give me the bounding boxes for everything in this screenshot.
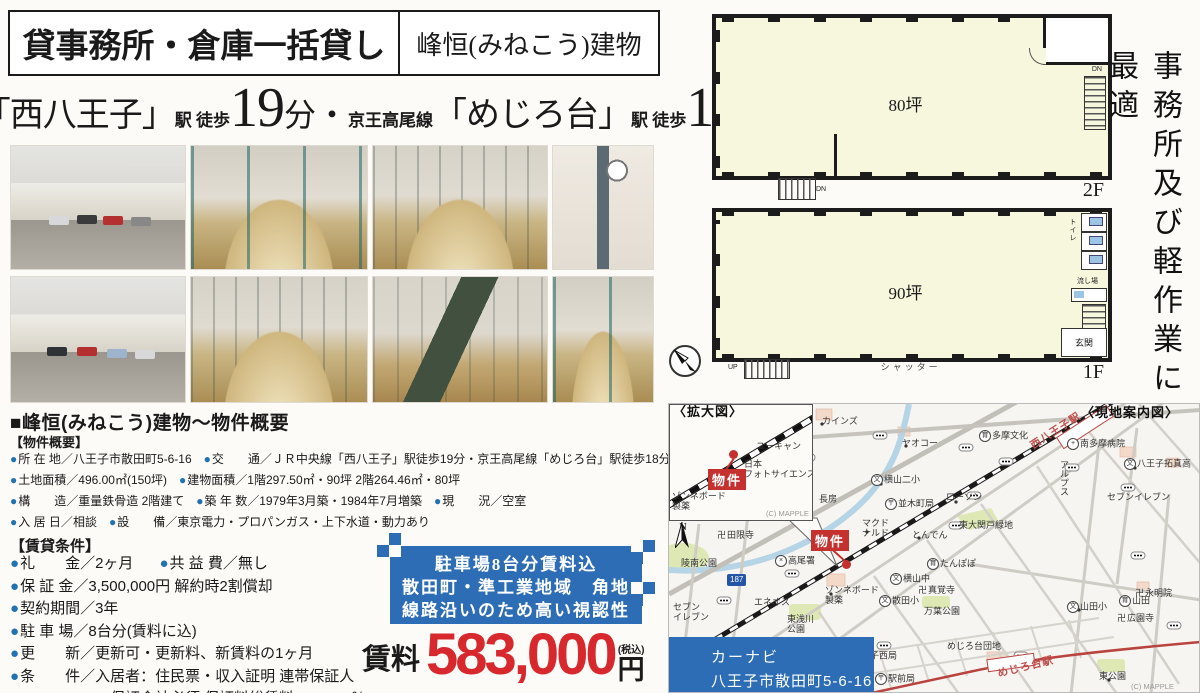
spec-item: ●交 通／ＪＲ中央線「西八王子」駅徒歩19分・京王高尾線「めじろ台」駅徒歩18分 <box>204 452 671 466</box>
spec-value: 2ヶ月 <box>95 555 133 572</box>
spec-separator: ／ <box>247 494 259 508</box>
wall-ticks <box>714 26 720 168</box>
stair-dn-label: DN <box>816 186 826 194</box>
header-box: 貸事務所・倉庫一括貸し 峰恒(みねこう)建物 <box>8 10 660 76</box>
spec-value: 496.00㎡(150坪) <box>78 473 167 487</box>
checker-decoration <box>631 540 655 564</box>
map-label: 〒並木町局 <box>885 498 934 510</box>
map-label: 陵南公園 <box>681 558 717 568</box>
property-rows: ●所 在 地／八王子市散田町5-6-16●交 通／ＪＲ中央線「西八王子」駅徒歩1… <box>10 449 658 533</box>
partition-wall <box>834 134 837 176</box>
floorplan-panel: 80坪 DN DN 2F 90坪 トイレ 流し場 UP 玄関 <box>668 0 1200 402</box>
bullet-icon: ● <box>179 473 186 487</box>
map-label: ×高尾署 <box>775 555 815 567</box>
wall-ticks <box>722 210 1102 216</box>
map-label: 長房 <box>819 494 837 504</box>
spec-item: ●構 造／重量鉄骨造 2階建て <box>10 494 184 508</box>
bullet-icon: ● <box>10 600 19 617</box>
rent-unit: 円 <box>618 656 645 684</box>
spec-item: ●礼 金／2ヶ月 <box>10 555 133 572</box>
spec-item: ●土地面積／496.00㎡(150坪) <box>10 473 167 487</box>
photo-interior-hall <box>552 276 654 403</box>
map-label: 卍永明院 <box>1135 588 1172 598</box>
map-symbol-icon: × <box>775 555 787 567</box>
door-arc <box>1029 48 1046 65</box>
checker-decoration <box>631 582 655 606</box>
spec-value: 八王子市散田町5-6-16 <box>73 452 192 466</box>
spec-item: ●入 居 日／相談 <box>10 515 97 529</box>
bullet-icon: ● <box>10 555 19 572</box>
spec-row: ●土地面積／496.00㎡(150坪)●建物面積／1階297.50㎡・90坪 2… <box>10 470 658 491</box>
property-marker-inset: 物件 <box>708 469 746 490</box>
carnav-address: 八王子市散田町5-6-16 <box>711 670 874 691</box>
map-symbol-icon: 育 <box>927 558 939 570</box>
map-symbol-icon: 文 <box>1067 601 1079 613</box>
spec-key: 構 造 <box>18 494 66 508</box>
overview-heading: ■峰恒(みねこう)建物〜物件概要 <box>10 408 289 435</box>
floorplan-1f: 90坪 トイレ 流し場 UP 玄関 UP シャッター 1F <box>712 208 1112 362</box>
map-compass-icon: N <box>675 522 691 533</box>
map-label: 万葉公園 <box>924 606 960 616</box>
map-credit: (C) MAPPLE <box>1131 682 1174 692</box>
spec-extra-line: 保証会社必須 保証料総賃料50〜100％ <box>110 688 390 693</box>
route-badge: 187 <box>727 574 746 586</box>
sink-label: 流し場 <box>1077 278 1098 286</box>
bullet-icon: ● <box>159 555 168 572</box>
map-label: マクドナルド <box>862 518 889 538</box>
map-label: セブンイレブン <box>1107 492 1170 502</box>
map-symbol-icon: 育 <box>979 430 991 442</box>
spec-separator: ／ <box>61 452 73 466</box>
spec-separator: ／ <box>223 555 238 572</box>
highlight-box: 駐車場8台分賃料込 散田町・準工業地域 角地 線路沿いのため高い視認性 <box>390 546 642 624</box>
map-label: +南多摩病院 <box>1067 438 1125 450</box>
map-symbol-icon: 文 <box>879 595 891 607</box>
spec-row: ●構 造／重量鉄骨造 2階建て●築 年 数／1979年3月築・1984年7月増築… <box>10 491 658 512</box>
spec-row: ●保 証 金／3,500,000円 解約時2割償却 <box>10 576 390 599</box>
spec-separator: ／ <box>80 555 95 572</box>
spec-key: 入 居 日 <box>18 515 61 529</box>
photo-grid <box>10 145 658 403</box>
photo-warehouse-1f <box>190 145 368 270</box>
spec-item: ●築 年 数／1979年3月築・1984年7月増築 <box>196 494 422 508</box>
bullet-icon: ● <box>10 668 19 685</box>
inset-title: 〈拡大図〉 <box>673 407 743 417</box>
map-label: ユーキャン <box>756 441 801 451</box>
vertical-tagline: 事務所及び軽作業に最適 <box>1098 50 1186 402</box>
stair-up-label: UP <box>728 364 738 372</box>
map-label: 卍広園寺 <box>1117 613 1154 623</box>
map-label: 東公園 <box>1099 671 1126 681</box>
spec-key: 築 年 数 <box>205 494 248 508</box>
map-label: ヤオコー <box>902 438 938 448</box>
map-label: 卍田限寺 <box>717 530 754 540</box>
checker-decoration <box>377 533 401 557</box>
spec-separator: ／ <box>260 452 272 466</box>
spec-row: ●入 居 日／相談●設 備／東京電力・プロパンガス・上下水道・動力あり <box>10 512 658 533</box>
exterior-stairs-2f <box>778 178 816 200</box>
map-symbol-icon: + <box>1067 438 1079 450</box>
spec-separator: ／ <box>235 473 247 487</box>
map-label: 文山田小 <box>1067 601 1107 613</box>
map-symbol-icon: 卍 <box>918 586 927 595</box>
floorplan-2f: 80坪 DN DN 2F <box>712 14 1112 180</box>
photo-wall-clock <box>552 145 654 270</box>
spec-separator: ／ <box>165 515 177 529</box>
spec-item: ●設 備／東京電力・プロパンガス・上下水道・動力あり <box>109 515 430 529</box>
spec-key: 更 新 <box>20 645 80 662</box>
spec-item: ●更 新／更新可・更新料、新賃料の1ヶ月 <box>10 645 313 662</box>
spec-item: ●契約期間／3年 <box>10 600 118 617</box>
spec-separator: ／ <box>80 668 95 685</box>
spec-item: ●保 証 金／3,500,000円 解約時2割償却 <box>10 578 273 595</box>
area-label-2f: 80坪 <box>888 91 922 116</box>
map-symbol-icon: 文 <box>871 474 883 486</box>
access-segment: ・ <box>316 90 348 136</box>
bullet-icon: ● <box>10 494 17 508</box>
spec-key: 条 件 <box>20 668 80 685</box>
inset-map: 物件 〈拡大図〉ユーキャン日本フォトサイエンスゾンネボード製薬(C) MAPPL… <box>669 404 813 521</box>
bullet-icon: ● <box>10 578 19 595</box>
spec-key: 礼 金 <box>20 555 80 572</box>
spec-value: 更新可・更新料、新賃料の1ヶ月 <box>95 645 313 662</box>
map-symbol-icon: 文 <box>1124 458 1136 470</box>
map-label: セブンイレブン <box>673 602 709 622</box>
map-label: 日本フォトサイエンス <box>744 459 813 479</box>
spec-value: 入居者：住民票・収入証明 連帯保証人 <box>95 668 354 685</box>
spec-value: 空室 <box>502 494 526 508</box>
flyer-page: 貸事務所・倉庫一括貸し 峰恒(みねこう)建物 ＪＲ中央線「西八王子」駅 徒歩 1… <box>0 0 1200 693</box>
spec-value: 3年 <box>95 600 118 617</box>
map-label: ローソン <box>946 492 982 502</box>
spec-value: 東京電力・プロパンガス・上下水道・動力あり <box>177 515 430 529</box>
highlight-line: 線路沿いのため高い視認性 <box>390 599 642 622</box>
photo-interior-stairs <box>372 276 548 403</box>
map-label: カインズ <box>822 416 858 426</box>
map-label: 東浅川公園 <box>787 614 814 634</box>
spec-row: ●駐 車 場／8台分(賃料に込) <box>10 621 390 644</box>
bullet-icon: ● <box>10 473 17 487</box>
photo-exterior-side <box>10 276 186 403</box>
spec-item: ●現 況／空室 <box>434 494 526 508</box>
spec-row: ●条 件／入居者：住民票・収入証明 連帯保証人 <box>10 666 390 689</box>
rent-label: 賃料 <box>362 636 420 684</box>
spec-item: ●条 件／入居者：住民票・収入証明 連帯保証人 <box>10 668 354 685</box>
spec-separator: ／ <box>73 623 88 640</box>
spec-row: ●更 新／更新可・更新料、新賃料の1ヶ月 <box>10 643 390 666</box>
tax-note: (税込) <box>618 641 645 656</box>
rental-rows: ●礼 金／2ヶ月●共 益 費／無し●保 証 金／3,500,000円 解約時2割… <box>10 553 390 693</box>
spec-item: ●所 在 地／八王子市散田町5-6-16 <box>10 452 192 466</box>
spec-item: ●共 益 費／無し <box>159 555 267 572</box>
spec-separator: ／ <box>490 494 502 508</box>
access-segment: 駅 徒歩 <box>175 106 230 131</box>
spec-separator: ／ <box>66 494 78 508</box>
spec-value: 相談 <box>73 515 97 529</box>
map-credit: (C) MAPPLE <box>766 509 809 519</box>
access-line: ＪＲ中央線「西八王子」駅 徒歩 19分・京王高尾線「めじろ台」駅 徒歩 18分 <box>6 76 658 142</box>
map-label: めじろ台団地 <box>947 641 1001 651</box>
spec-separator: ／ <box>61 515 73 529</box>
main-map-title: 〈現地案内図〉 <box>1081 408 1179 418</box>
map-label: 文横山中 <box>890 573 930 585</box>
spec-value: 8台分(賃料に込) <box>88 623 196 640</box>
rent-amount: 583,000 <box>426 626 615 684</box>
spec-value: 無し <box>238 555 268 572</box>
spec-separator: ／ <box>66 473 78 487</box>
photo-warehouse-2f <box>190 276 368 403</box>
map-label: とんでん <box>912 530 948 540</box>
spec-key: 交 通 <box>212 452 260 466</box>
property-pin-dot <box>729 450 738 459</box>
spec-key: 設 備 <box>117 515 165 529</box>
bullet-icon: ● <box>109 515 116 529</box>
spec-separator: ／ <box>80 645 95 662</box>
map-label: 文散田小 <box>879 595 919 607</box>
bullet-icon: ● <box>10 452 17 466</box>
building-name: 峰恒(みねこう)建物 <box>398 12 658 74</box>
map-label: 育たんぽぽ <box>927 558 976 570</box>
access-segment: 19 <box>230 76 284 140</box>
bullet-icon: ● <box>10 515 17 529</box>
map-symbol-icon: 文 <box>890 573 902 585</box>
carnav-title: カーナビ <box>711 646 874 667</box>
photo-interior-doors <box>372 145 548 270</box>
spec-row: ●礼 金／2ヶ月●共 益 費／無し <box>10 553 390 576</box>
exterior-stairs-1f <box>744 359 790 379</box>
spec-key: 保 証 金 <box>20 578 73 595</box>
spec-value: ＪＲ中央線「西八王子」駅徒歩19分・京王高尾線「めじろ台」駅徒歩18分 <box>272 452 671 466</box>
spec-row: ●所 在 地／八王子市散田町5-6-16●交 通／ＪＲ中央線「西八王子」駅徒歩1… <box>10 449 658 470</box>
spec-separator: ／ <box>73 578 88 595</box>
map-symbol-icon: 〒 <box>885 498 897 510</box>
map-label: ゾンネボード製薬 <box>825 585 879 605</box>
map-label: アルプス <box>1059 460 1069 496</box>
access-segment: 「西八王子」 <box>0 87 175 136</box>
spec-value: 1階297.50㎡・90坪 2階264.46㎡・80坪 <box>247 473 460 487</box>
shutter-label: シャッター <box>881 360 941 373</box>
spec-key: 契約期間 <box>20 600 80 617</box>
map-label: 東大関戸緑地 <box>959 520 1013 530</box>
spec-item: ●建物面積／1階297.50㎡・90坪 2階264.46㎡・80坪 <box>179 473 460 487</box>
spec-key: 建物面積 <box>187 473 235 487</box>
access-segment: 「めじろ台」 <box>433 87 631 136</box>
map-label: 育多摩文化 <box>979 430 1028 442</box>
map-symbol-icon: 卍 <box>717 531 726 540</box>
bullet-icon: ● <box>196 494 203 508</box>
toilet-label: トイレ <box>1067 218 1077 242</box>
map-label: ゾンネボード製薬 <box>672 491 726 511</box>
map-label: エネオス <box>754 597 790 607</box>
map-symbol-icon: 卍 <box>1135 589 1144 598</box>
spec-key: 駐 車 場 <box>20 623 73 640</box>
spec-row: ●契約期間／3年 <box>10 598 390 621</box>
bullet-icon: ● <box>204 452 211 466</box>
map-label: 文横山二小 <box>871 474 920 486</box>
property-pin-dot <box>842 560 851 569</box>
access-segment: 京王高尾線 <box>348 106 433 131</box>
spec-item: ●駐 車 場／8台分(賃料に込) <box>10 623 197 640</box>
highlight-line: 散田町・準工業地域 角地 <box>390 576 642 599</box>
map-symbol-icon: 育 <box>1119 595 1131 607</box>
spec-value: 3,500,000円 解約時2割償却 <box>88 578 272 595</box>
map-panel: 物件 物件 〈拡大図〉ユーキャン日本フォトサイエンスゾンネボード製薬(C) MA… <box>668 403 1200 693</box>
spec-value: 重量鉄骨造 2階建て <box>78 494 184 508</box>
page-title: 貸事務所・倉庫一括貸し <box>10 12 398 74</box>
spec-value: 1979年3月築・1984年7月増築 <box>259 494 422 508</box>
map-label: 〒駅前局 <box>875 673 915 685</box>
rent-price: 賃料 583,000 (税込) 円 <box>362 626 645 684</box>
map-symbol-icon: 卍 <box>1117 614 1126 623</box>
bullet-icon: ● <box>10 623 19 640</box>
bullet-icon: ● <box>10 645 19 662</box>
carnav-box: カーナビ 八王子市散田町5-6-16 <box>669 637 874 693</box>
spec-key: 土地面積 <box>18 473 66 487</box>
access-segment: 分 <box>284 90 316 136</box>
map-label: 文八王子拓真高 <box>1124 458 1191 470</box>
spec-separator: ／ <box>80 600 95 617</box>
area-label-1f: 90坪 <box>888 279 922 304</box>
spec-key: 共 益 費 <box>170 555 223 572</box>
compass-icon <box>668 344 702 378</box>
wall-ticks <box>714 220 720 350</box>
photo-exterior-corner <box>10 145 186 270</box>
map-label: 卍真覚寺 <box>918 585 955 595</box>
spec-key: 現 況 <box>442 494 490 508</box>
spec-key: 所 在 地 <box>18 452 61 466</box>
highlight-line: 駐車場8台分賃料込 <box>390 553 642 576</box>
bullet-icon: ● <box>434 494 441 508</box>
map-symbol-icon: 〒 <box>875 673 887 685</box>
